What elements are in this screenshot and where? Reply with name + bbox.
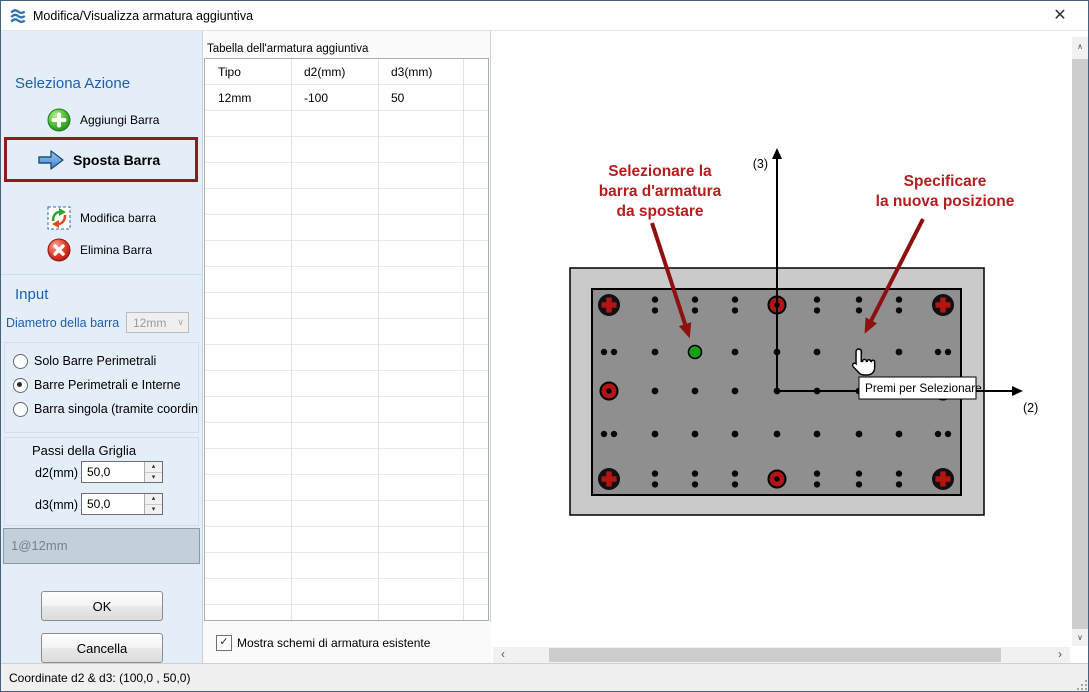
column-divider [463,59,464,620]
vertical-scrollbar[interactable]: ∧ ∨ [1072,37,1088,646]
rebar-grid-dot[interactable] [856,307,862,313]
column-header: Tipo [218,59,241,85]
rebar-grid-dot[interactable] [652,470,658,476]
rebar-grid-dot[interactable] [896,349,903,356]
rebar-grid-dot[interactable] [601,349,607,355]
d2-label: d2(mm) [35,466,78,480]
rebar-grid-dot[interactable] [732,388,739,395]
rebar-grid-dot[interactable] [896,431,903,438]
rebar-grid-dot[interactable] [896,296,902,302]
d2-stepper[interactable]: 50,0 ▴ ▾ [81,461,163,483]
rebar-grid-dot[interactable] [652,296,658,302]
coordinates-status: Coordinate d2 & d3: (100,0 , 50,0) [9,664,190,692]
diameter-label: Diametro della barra [6,316,119,330]
spin-up-icon[interactable]: ▴ [145,462,162,473]
specify-note-line: Specificare [904,173,987,190]
rebar-grid-dot[interactable] [856,296,862,302]
action-add-bar[interactable]: Aggiungi Barra [47,107,159,133]
rebar-grid-dot[interactable] [652,388,659,395]
resize-grip[interactable] [1085,688,1087,690]
rebar-grid-dot[interactable] [652,349,659,356]
action-modify-bar[interactable]: Modifica barra [47,205,156,231]
d3-value: 50,0 [82,494,144,514]
column-divider [291,59,292,620]
action-sidebar: Seleziona Azione Aggiungi Barra Sposta B… [1,31,203,663]
rebar-grid-dot[interactable] [814,470,820,476]
column-divider [378,59,379,620]
rebar-grid-dot[interactable] [814,349,821,356]
horizontal-scroll-thumb[interactable] [549,648,1001,662]
radio-icon [13,354,28,369]
spin-down-icon[interactable]: ▾ [145,473,162,483]
grid-steps-title: Passi della Griglia [32,443,136,458]
column-header: d2(mm) [304,59,345,85]
horizontal-scrollbar[interactable]: ‹ › [493,647,1070,663]
rebar-grid-dot[interactable] [814,296,820,302]
rebar-table[interactable]: Tipo d2(mm) d3(mm) 12mm -100 50 [204,58,489,621]
sidebar-heading: Seleziona Azione [15,75,130,92]
table-header-row: Tipo d2(mm) d3(mm) [205,59,488,85]
checkbox-label: Mostra schemi di armatura esistente [237,636,430,650]
rebar-grid-dot[interactable] [692,296,698,302]
scroll-left-icon[interactable]: ‹ [495,647,511,663]
rebar-grid-dot[interactable] [732,307,738,313]
title-bar: Modifica/Visualizza armatura aggiuntiva … [1,1,1088,31]
radio-label: Solo Barre Perimetrali [34,354,156,368]
rebar-grid-dot[interactable] [652,431,659,438]
rebar-grid-dot[interactable] [611,349,617,355]
diameter-value: 12mm [133,316,166,330]
radio-label: Barra singola (tramite coordinate [34,402,198,416]
rebar-center-dot [774,476,779,481]
table-row[interactable]: 12mm -100 50 [205,85,488,111]
close-button[interactable]: ✕ [1040,1,1080,31]
cursor-tooltip: Premi per Selezionare [859,377,982,399]
cancel-button[interactable]: Cancella [41,633,163,663]
cell-d2: -100 [304,85,328,111]
cell-tipo: 12mm [218,85,251,111]
rebar-grid-dot[interactable] [732,470,738,476]
rebar-grid-dot[interactable] [896,307,902,313]
section-drawing: (3) (2) Selezionare la barra d'armatura … [492,31,1071,646]
selected-bar-green[interactable] [689,346,702,359]
radio-icon [13,378,28,393]
d3-stepper[interactable]: 50,0 ▴ ▾ [81,493,163,515]
select-note-line: barra d'armatura [599,183,722,200]
tooltip-text: Premi per Selezionare [865,381,982,395]
add-bar-icon [47,108,71,132]
window-title: Modifica/Visualizza armatura aggiuntiva [33,1,253,31]
spin-down-icon[interactable]: ▾ [145,505,162,515]
action-label: Modifica barra [80,211,156,225]
rebar-grid-dot[interactable] [732,349,739,356]
rebar-grid-dot[interactable] [945,431,951,437]
select-note-line: Selezionare la [608,163,712,180]
diameter-select[interactable]: 12mm ∨ [126,312,189,333]
bar-summary: 1@12mm [3,528,200,564]
rebar-grid-dot[interactable] [732,481,738,487]
table-title: Tabella dell'armatura aggiuntiva [207,43,368,55]
radio-label: Barre Perimetrali e Interne [34,378,181,392]
rebar-grid-dot[interactable] [652,307,658,313]
rebar-grid-dot[interactable] [935,431,941,437]
action-label: Elimina Barra [80,243,152,257]
rebar-grid-dot[interactable] [856,431,863,438]
axis-3-label: (3) [753,157,768,171]
action-label: Sposta Barra [73,152,160,168]
select-note-line: da spostare [616,203,703,220]
app-icon [9,7,27,25]
radio-perimetrali-interne[interactable]: Barre Perimetrali e Interne [5,373,198,397]
delete-bar-icon [47,238,71,262]
divider [1,274,203,275]
radio-solo-perimetrali[interactable]: Solo Barre Perimetrali [5,349,198,373]
rebar-grid-dot[interactable] [692,431,699,438]
d2-value: 50,0 [82,462,144,482]
ok-button[interactable]: OK [41,591,163,621]
close-icon: ✕ [1053,7,1066,24]
check-mark-icon: ✓ [219,636,228,648]
scroll-up-icon[interactable]: ∧ [1072,39,1088,55]
spin-up-icon[interactable]: ▴ [145,494,162,505]
move-bar-icon [37,148,65,172]
scroll-down-icon[interactable]: ∨ [1072,630,1088,646]
grid-steps-group: Passi della Griglia d2(mm) 50,0 ▴ ▾ d3(m… [4,437,199,526]
rebar-grid-dot[interactable] [611,431,617,437]
show-existing-checkbox-row[interactable]: ✓ Mostra schemi di armatura esistente [203,622,491,663]
chevron-down-icon: ∨ [177,317,184,328]
rebar-grid-dot[interactable] [814,307,820,313]
rebar-grid-dot[interactable] [692,470,698,476]
rebar-grid-dot[interactable] [732,296,738,302]
rebar-grid-dot[interactable] [601,431,607,437]
rebar-grid-dot[interactable] [652,481,658,487]
rebar-grid-dot[interactable] [692,481,698,487]
rebar-grid-dot[interactable] [856,481,862,487]
rebar-grid-dot[interactable] [732,431,739,438]
rebar-grid-dot[interactable] [692,307,698,313]
radio-barra-singola[interactable]: Barra singola (tramite coordinate [5,397,198,421]
rebar-grid-dot[interactable] [692,388,699,395]
rebar-grid-dot[interactable] [896,470,902,476]
rebar-grid-dot[interactable] [814,481,820,487]
cell-d3: 50 [391,85,404,111]
action-label: Aggiungi Barra [80,113,159,127]
specify-note-line: la nuova posizione [876,193,1015,210]
scroll-right-icon[interactable]: › [1052,647,1068,663]
radio-icon [13,402,28,417]
rebar-grid-dot[interactable] [856,470,862,476]
action-delete-bar[interactable]: Elimina Barra [47,237,152,263]
rebar-grid-dot[interactable] [896,481,902,487]
status-bar: Coordinate d2 & d3: (100,0 , 50,0) [1,663,1089,692]
input-heading: Input [15,286,48,303]
rebar-grid-dot[interactable] [935,349,941,355]
dialog-window: Modifica/Visualizza armatura aggiuntiva … [0,0,1089,692]
action-move-bar-selected[interactable]: Sposta Barra [4,137,198,182]
axis-2-label: (2) [1023,401,1038,415]
column-header: d3(mm) [391,59,432,85]
rebar-center-dot [606,388,611,393]
rebar-grid-dot[interactable] [945,349,951,355]
checkbox-icon[interactable]: ✓ [216,635,232,651]
rebar-grid-dot[interactable] [774,431,781,438]
d3-label: d3(mm) [35,498,78,512]
modify-bar-icon [47,206,71,230]
vertical-scroll-thumb[interactable] [1072,59,1088,629]
bar-scope-group: Solo Barre Perimetrali Barre Perimetrali… [4,342,199,433]
rebar-grid-dot[interactable] [814,431,821,438]
